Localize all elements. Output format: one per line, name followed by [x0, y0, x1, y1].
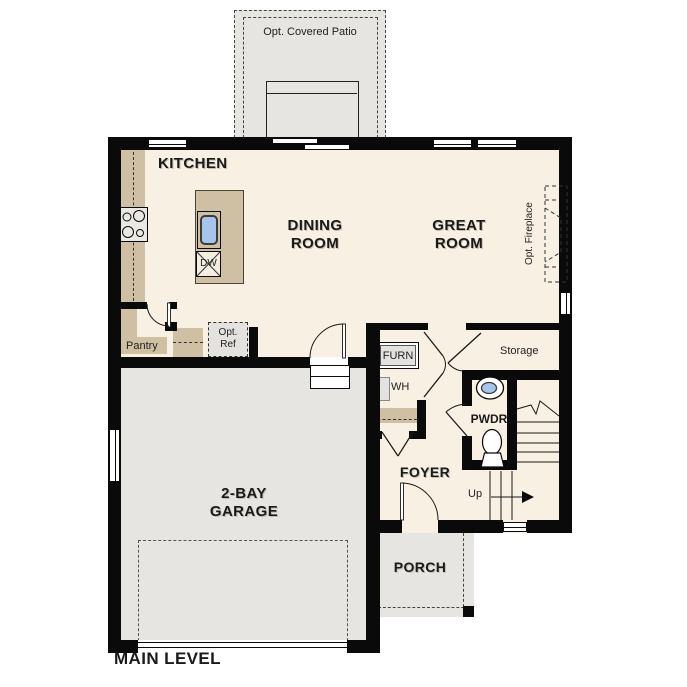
patio-pad-step-line	[266, 93, 357, 94]
opt-ref-label-line2: Ref	[208, 339, 248, 351]
floorplan-main-level: FURN	[0, 0, 687, 687]
great-room-side-window	[560, 292, 571, 315]
wall-coat-stub	[366, 400, 379, 407]
great-room-label: GREAT ROOM	[432, 217, 485, 253]
garage-label-line2: GARAGE	[210, 503, 278, 521]
wall-garage-right	[366, 323, 380, 653]
wall-garage-bottom-seg2	[347, 640, 380, 653]
furnace-box: FURN	[377, 342, 419, 369]
dining-room-label: DINING ROOM	[288, 217, 343, 253]
porch-post	[463, 606, 474, 617]
wall-pwdr-bottom	[462, 460, 517, 470]
stairs-up-label: Up	[468, 488, 482, 500]
wall-bottom-seg3	[527, 520, 572, 533]
water-heater-label: WH	[391, 381, 409, 393]
foyer-window	[503, 522, 527, 532]
powder-label: PWDR	[471, 412, 508, 426]
garage-window	[109, 429, 120, 482]
patio-slider-panel-2	[304, 144, 350, 150]
wall-pwdr-left-seg1	[462, 370, 472, 406]
wall-pantry-stub-lower	[165, 322, 177, 331]
wall-pantry-hinge-stub	[169, 302, 177, 309]
garage-label: 2-BAY GARAGE	[210, 485, 278, 521]
storage-label: Storage	[500, 345, 539, 357]
wall-optref-stub	[249, 327, 258, 357]
porch-dashed-right	[463, 533, 465, 607]
island-sink-basin	[200, 215, 218, 245]
wall-coat-bottom-seg1	[366, 431, 382, 439]
garage-door-panel-line1	[138, 642, 347, 643]
dining-room-label-line1: DINING	[288, 217, 343, 235]
fireplace-label: Opt. Fireplace	[524, 186, 535, 282]
opt-ref-label: Opt. Ref	[208, 327, 248, 351]
foyer-label: FOYER	[400, 463, 450, 481]
dining-room-label-line2: ROOM	[288, 235, 343, 253]
wall-coat-bottom-seg2	[409, 431, 426, 439]
covered-patio-label: Opt. Covered Patio	[263, 26, 357, 38]
garage-apron-dashed	[138, 540, 348, 641]
patio-pad	[266, 81, 359, 140]
kitchen-window	[148, 139, 187, 148]
cooktop	[120, 207, 148, 242]
wall-closet-top	[366, 323, 428, 330]
wall-pwdr-right	[507, 370, 517, 470]
mud-counter-dashline	[173, 342, 203, 343]
great-room-window-2	[477, 139, 517, 148]
wall-left	[108, 137, 121, 653]
opt-ref-label-line1: Opt.	[208, 327, 248, 339]
wall-right	[559, 137, 572, 533]
garage-door-panel-line2	[138, 647, 347, 648]
wall-bottom-seg2	[438, 520, 503, 533]
kitchen-label: KITCHEN	[158, 155, 227, 173]
wall-garage-top-seg1	[108, 357, 310, 368]
pantry-label: Pantry	[126, 340, 158, 352]
dishwasher-label: DW	[200, 258, 217, 269]
great-room-label-line1: GREAT	[432, 217, 485, 235]
wall-storage-top	[466, 323, 572, 330]
porch-label: PORCH	[394, 558, 447, 576]
garage-entry-step-2	[310, 376, 350, 389]
furnace-box-inner: FURN	[380, 345, 416, 366]
furnace-label: FURN	[383, 350, 414, 362]
wall-pwdr-top	[462, 370, 572, 380]
main-level-title: MAIN LEVEL	[114, 650, 221, 668]
great-room-label-line2: ROOM	[432, 235, 485, 253]
garage-label-line1: 2-BAY	[210, 485, 278, 503]
wall-pantry-top	[121, 302, 147, 309]
porch-dashed-bottom	[378, 607, 474, 609]
great-room-window-1	[433, 139, 472, 148]
